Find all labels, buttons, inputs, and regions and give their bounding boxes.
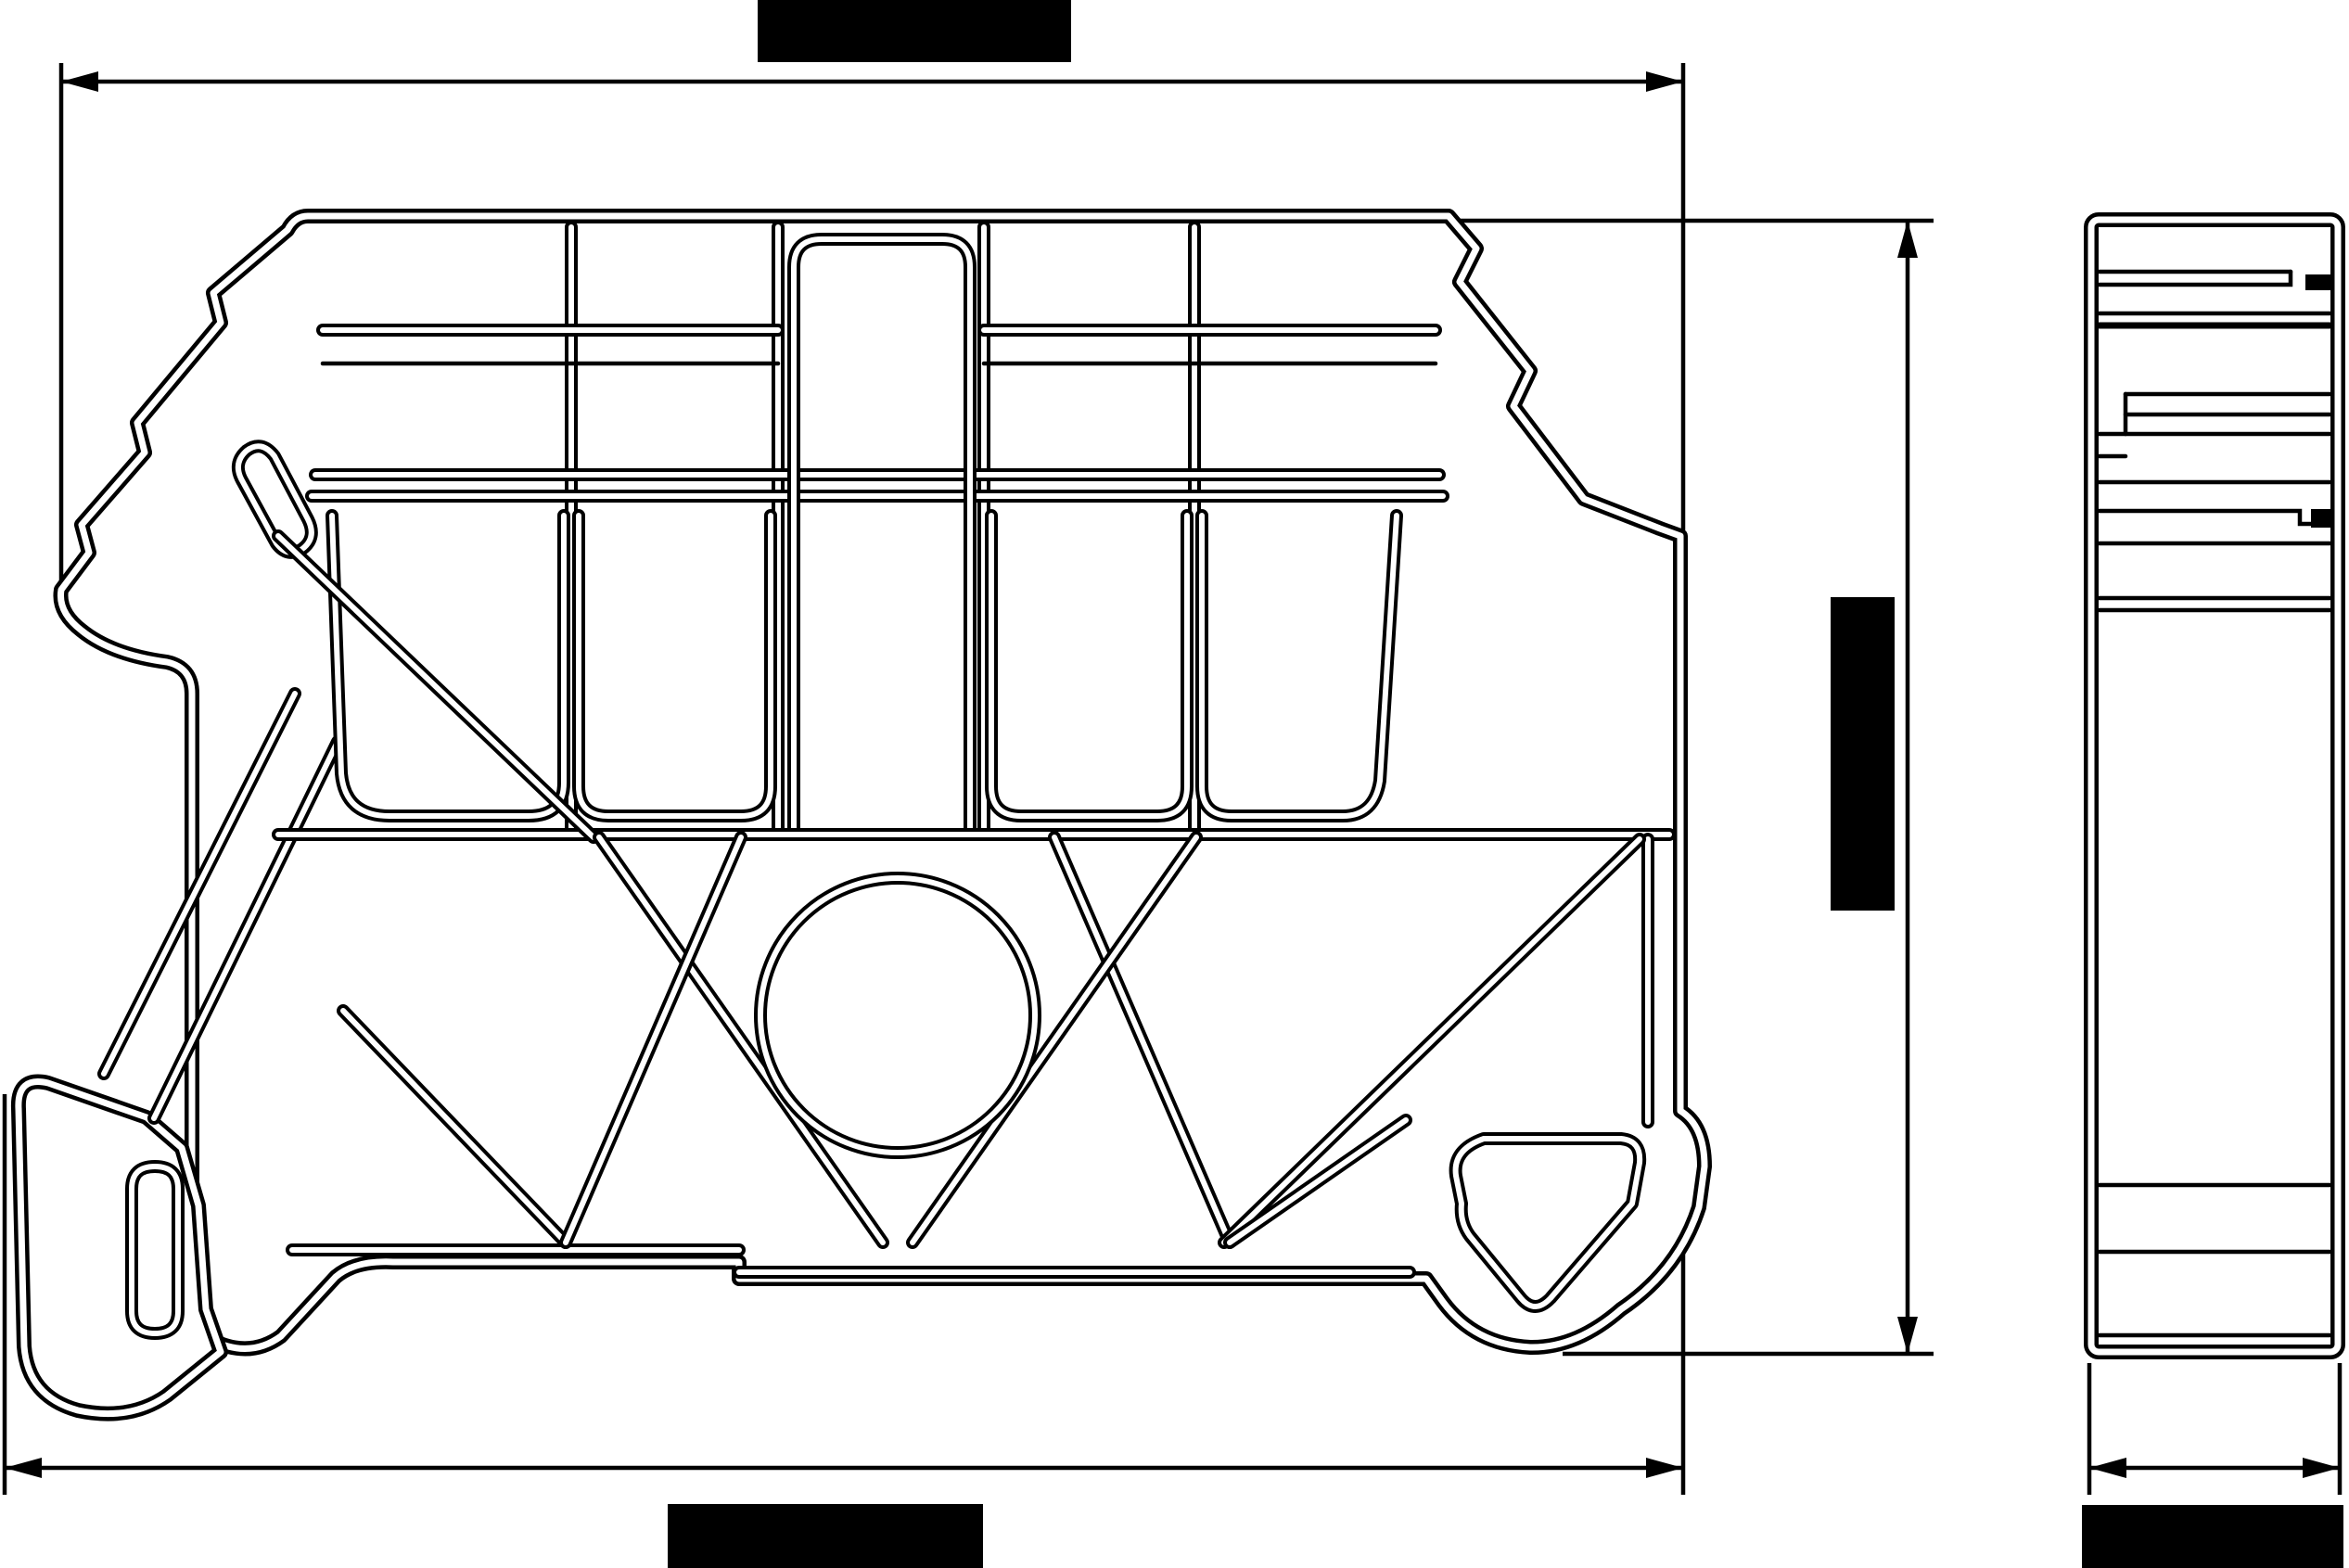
redacted-dimension-label [1831,597,1895,911]
arrowhead-left-icon [61,71,98,92]
side-outline [2091,220,2338,1352]
arrowhead-down-icon [1897,1317,1918,1354]
layer-notch [2311,509,2331,528]
side-view [2091,220,2338,1352]
dimension-side-depth [2082,1363,2343,1568]
layer-notch [2305,274,2331,290]
cad-drawing [0,0,2349,1568]
arrowhead-right-icon [1646,1458,1683,1478]
redacted-dimension-label [668,1504,983,1568]
redacted-dimension-label [2082,1505,2343,1568]
drawing-canvas [0,0,2349,1568]
front-view [19,216,1704,1414]
arrowhead-right-icon [1646,71,1683,92]
arrowhead-up-icon [1897,221,1918,258]
arrowhead-left-icon [5,1458,42,1478]
arrowhead-right-icon [2303,1458,2340,1478]
redacted-dimension-label [758,0,1071,62]
arrowhead-left-icon [2089,1458,2126,1478]
